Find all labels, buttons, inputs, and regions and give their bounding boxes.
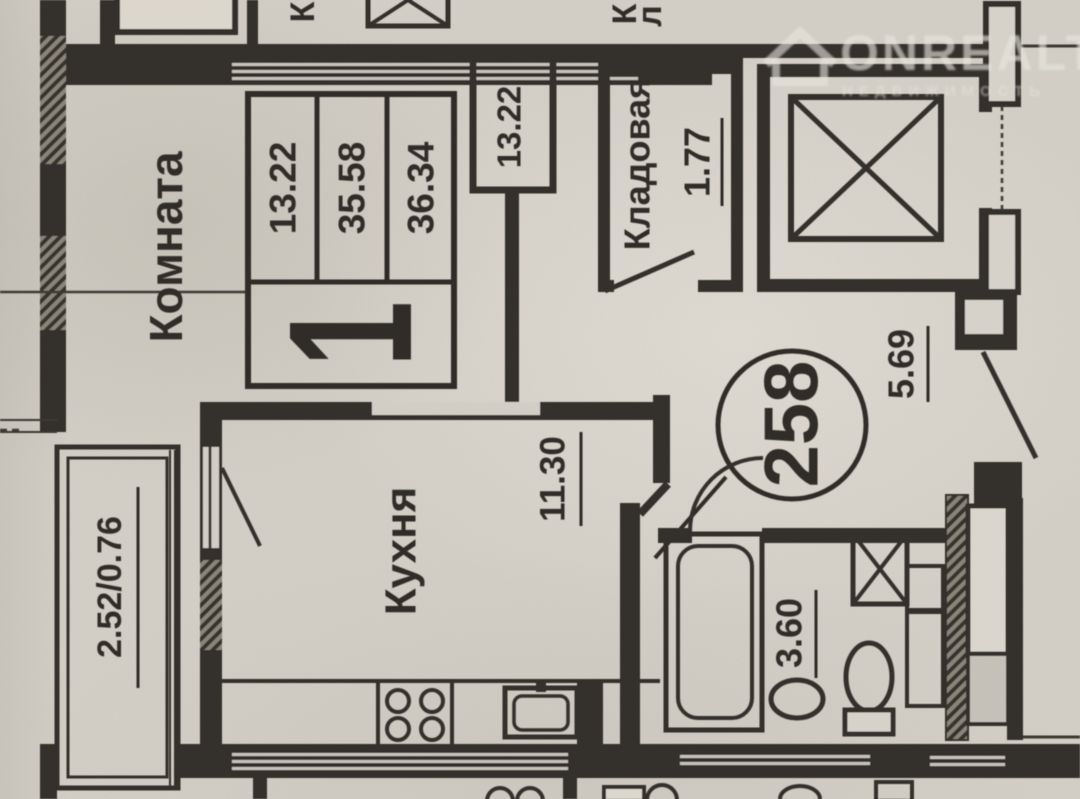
scanned-floor-plan: Комната 13.22 35.58 36.34 1 13.22 Кладов… — [0, 0, 1080, 799]
floor-plan-canvas: Комната 13.22 35.58 36.34 1 13.22 Кладов… — [0, 0, 1080, 799]
paper-grain-overlay — [0, 0, 1080, 799]
